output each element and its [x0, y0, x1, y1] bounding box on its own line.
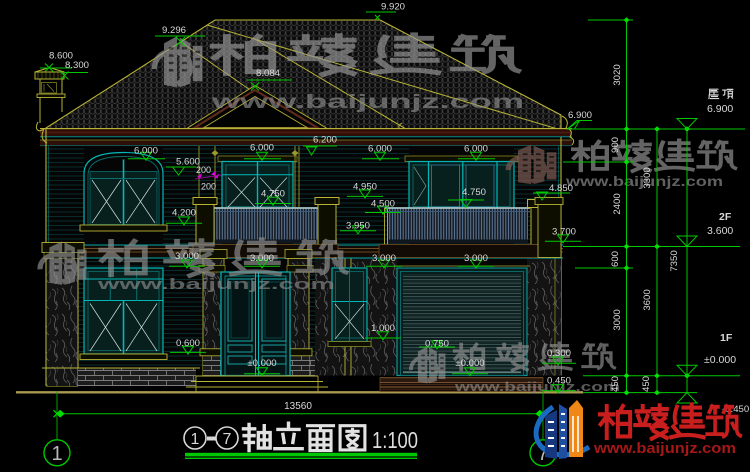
svg-text:600: 600: [610, 251, 621, 267]
svg-text:8.084: 8.084: [256, 68, 281, 79]
svg-text:7350: 7350: [669, 250, 680, 271]
svg-text:9.296: 9.296: [162, 25, 186, 36]
svg-text:6.000: 6.000: [368, 144, 392, 155]
svg-text:±0.000: ±0.000: [704, 354, 736, 366]
svg-text:4.200: 4.200: [172, 208, 196, 219]
svg-text:3.700: 3.700: [552, 227, 576, 238]
svg-text:2F: 2F: [719, 211, 732, 223]
svg-text:450: 450: [641, 376, 652, 392]
svg-text:3.000: 3.000: [250, 253, 274, 264]
svg-text:www.baijunjz.com: www.baijunjz.com: [96, 276, 335, 293]
svg-text:6.000: 6.000: [250, 143, 274, 154]
svg-text:3300: 3300: [642, 167, 653, 188]
svg-text:www.baijunjz.com: www.baijunjz.com: [593, 440, 736, 457]
svg-text:3.000: 3.000: [175, 251, 199, 262]
svg-text:6.900: 6.900: [707, 103, 733, 115]
svg-text:6.200: 6.200: [313, 135, 337, 146]
svg-text:1.000: 1.000: [371, 323, 395, 334]
svg-text:0.450: 0.450: [547, 376, 571, 387]
svg-text:900: 900: [610, 137, 621, 153]
svg-text:7: 7: [223, 431, 232, 448]
svg-text:8.300: 8.300: [65, 60, 89, 71]
svg-text:www.baijunjz.com: www.baijunjz.com: [454, 379, 620, 394]
svg-text:200: 200: [196, 165, 211, 175]
svg-text:1: 1: [191, 431, 200, 448]
svg-text:0.750: 0.750: [425, 339, 449, 350]
svg-text:±0.000: ±0.000: [455, 358, 484, 369]
svg-text:0.600: 0.600: [176, 338, 200, 349]
svg-text:3020: 3020: [612, 64, 623, 85]
svg-text:1F: 1F: [720, 332, 733, 344]
svg-text:13560: 13560: [284, 401, 312, 412]
svg-text:3600: 3600: [642, 289, 653, 310]
svg-text:1: 1: [51, 443, 62, 465]
svg-text:6.000: 6.000: [464, 144, 488, 155]
svg-text:6.000: 6.000: [134, 146, 158, 157]
svg-text:www.baijunjz.com: www.baijunjz.com: [210, 92, 524, 113]
svg-text:0.300: 0.300: [547, 348, 571, 359]
svg-text:4.500: 4.500: [371, 199, 395, 210]
svg-text:3000: 3000: [612, 309, 623, 330]
svg-text:3.000: 3.000: [464, 253, 488, 264]
svg-text:3.000: 3.000: [372, 253, 396, 264]
svg-text:6.900: 6.900: [568, 110, 592, 121]
svg-text:1:100: 1:100: [372, 427, 418, 453]
svg-text:4.750: 4.750: [261, 189, 285, 200]
svg-text:4.750: 4.750: [462, 187, 486, 198]
svg-text:4.950: 4.950: [353, 182, 377, 193]
svg-text:±0.000: ±0.000: [247, 358, 276, 369]
svg-text:3.600: 3.600: [707, 225, 733, 237]
svg-text:200: 200: [201, 182, 216, 192]
svg-text:450: 450: [610, 376, 621, 392]
svg-text:2400: 2400: [612, 193, 623, 214]
svg-text:9.920: 9.920: [381, 2, 405, 13]
svg-text:4.850: 4.850: [549, 183, 573, 194]
svg-text:3.950: 3.950: [346, 221, 370, 232]
